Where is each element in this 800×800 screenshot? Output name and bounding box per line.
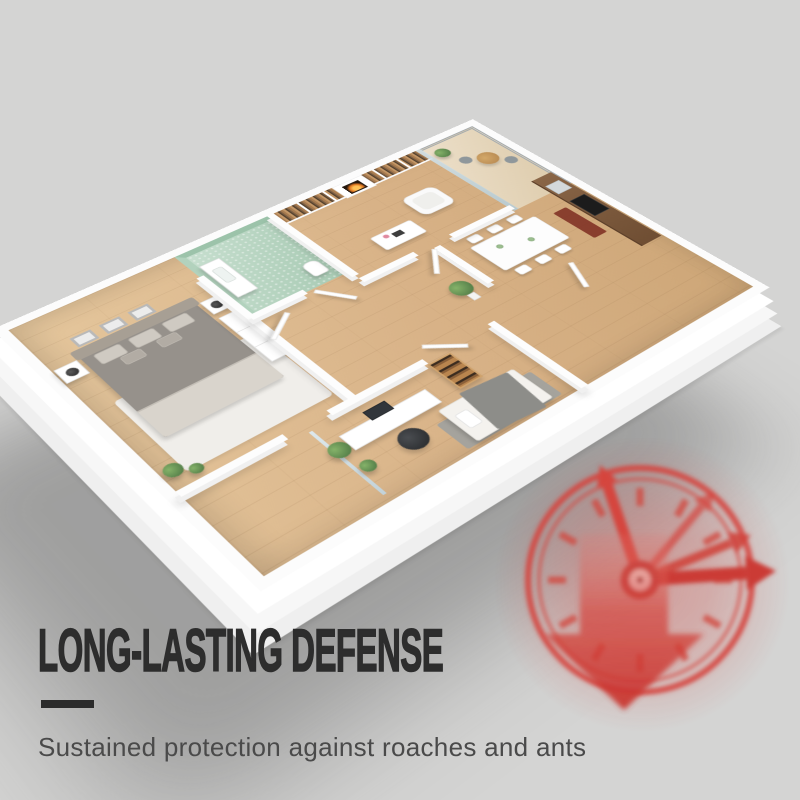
clock-arrow-graphic xyxy=(492,438,792,738)
ad-canvas: LONG-LASTING DEFENSE Sustained protectio… xyxy=(0,0,800,800)
lamp xyxy=(63,366,81,378)
lamp xyxy=(208,299,226,310)
table-decor xyxy=(526,236,536,242)
table-decor xyxy=(495,244,505,250)
